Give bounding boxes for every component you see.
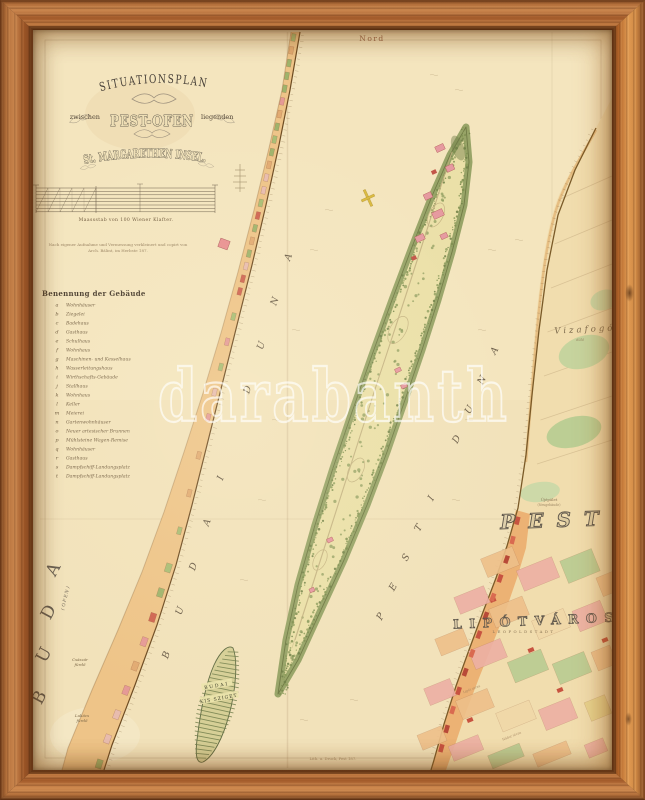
legend-letter: j — [55, 384, 58, 390]
legend-name: Wasserleitungshaus — [66, 366, 113, 372]
frame-top — [0, 0, 645, 30]
csaszar-furdo-label-line2: fürdő — [74, 662, 87, 667]
legend-name: Gasthaus — [66, 456, 88, 462]
legend-letter: o — [55, 429, 58, 435]
frame-left — [0, 0, 33, 800]
legend-name: Keller — [65, 402, 81, 408]
legend-name: Gartenwohnhäuser — [66, 420, 111, 426]
legend-name: Dampfschiff-Landungsplatz — [65, 474, 130, 480]
bottom-imprint: Lith. u. Druck, Pest 187. — [310, 756, 357, 761]
north-label: Nord — [359, 34, 384, 43]
ujepulet-label-line2: (Neugebäude) — [537, 503, 560, 507]
legend-letter: s — [56, 465, 59, 471]
lipotvaros-sublabel: LEOPOLDSTADT — [493, 629, 556, 634]
legend-letter: n — [55, 420, 58, 426]
legend-name: Gasthaus — [66, 330, 88, 336]
legend-letter: m — [55, 411, 60, 417]
legend-name: Wohnhäuser — [66, 303, 96, 309]
legend-letter: k — [55, 393, 58, 399]
legend-letter: q — [55, 447, 58, 453]
legend-letter: a — [56, 303, 59, 309]
scale-caption: Maassstab von 100 Wiener Klafter. — [79, 217, 174, 223]
legend-letter: b — [55, 312, 58, 318]
title-suffix: liegenden — [201, 113, 233, 121]
legend-name: Ziegelei — [65, 312, 85, 318]
legend-letter: g — [55, 357, 58, 363]
pest-label: PEST — [499, 506, 612, 534]
legend-name: Meierei — [65, 411, 85, 417]
imprint-line2: Arch. Bálint, im Herbste 187. — [87, 248, 148, 253]
watermark-text: darabanth — [158, 353, 510, 438]
legend-letter: c — [56, 321, 59, 327]
legend-name: Schulhaus — [66, 339, 91, 345]
map-photo: BUDAI KIS SZIGET SITUATIONSPLAN zwischen… — [0, 0, 645, 800]
legend-name: Neuer artesischer Brunnen — [65, 429, 130, 435]
title-pest-ofen: PEST-OFEN — [110, 112, 194, 130]
map-sheet: BUDAI KIS SZIGET SITUATIONSPLAN zwischen… — [0, 0, 645, 800]
ujepulet-label-line1: Újépület — [541, 497, 558, 502]
legend-name: Wohnhaus — [66, 393, 91, 399]
legend-letter: d — [55, 330, 58, 336]
title-prefix: zwischen — [70, 113, 100, 121]
legend-title: Benennung der Gebäude — [42, 289, 146, 298]
legend-letter: h — [55, 366, 58, 372]
legend-name: Stallhaus — [66, 384, 88, 390]
legend-name: Wohnhäuser — [66, 447, 96, 453]
legend-name: Maschinen- und Kesselhaus — [65, 357, 131, 363]
imprint-line1: Nach eigener Aufnahme und Vermessung ver… — [49, 242, 188, 247]
legend-name: Wirthschafts-Gebäude — [66, 375, 118, 381]
legend-name: Dampfschiff-Landungsplatz — [65, 465, 130, 471]
frame-right — [612, 0, 645, 800]
vizafogo-sublabel: dűlő — [576, 338, 585, 342]
legend-name: Mühlsteine Wagen-Remise — [65, 438, 128, 444]
legend-letter: e — [56, 339, 59, 345]
legend-name: Wohnhaus — [66, 348, 91, 354]
legend-name: Badehaus — [65, 321, 89, 327]
lukacs-furdo-label-line2: fürdő — [76, 718, 89, 723]
frame-bottom — [0, 770, 645, 800]
